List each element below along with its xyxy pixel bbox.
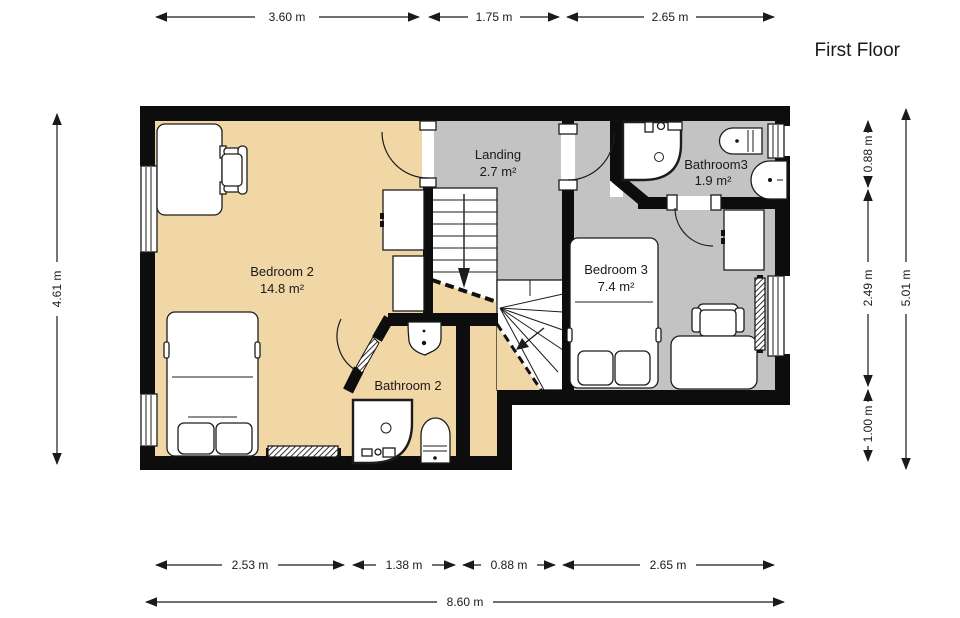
bedroom2-area: 14.8 m² <box>260 281 305 296</box>
dim-right-1: 0.88 m <box>861 136 875 173</box>
page-title: First Floor <box>815 40 901 61</box>
radiator-icon <box>755 275 765 353</box>
window-right-bedroom3 <box>768 276 784 356</box>
window-right-bathroom3 <box>768 124 784 158</box>
window-left-upper <box>141 166 157 252</box>
bathroom2-label: Bathroom 2 <box>374 378 441 393</box>
dim-right-total: 5.01 m <box>899 270 913 307</box>
desk-icon <box>157 124 226 215</box>
dim-top-1: 3.60 m <box>269 10 306 24</box>
double-bed-icon <box>164 312 260 456</box>
sink-icon <box>751 161 787 199</box>
dim-right-2: 2.49 m <box>861 270 875 307</box>
dim-top-3: 2.65 m <box>652 10 689 24</box>
double-bed-icon <box>567 238 661 388</box>
bedroom3-label: Bedroom 3 <box>584 262 648 277</box>
landing-label: Landing <box>475 147 521 162</box>
landing-area: 2.7 m² <box>480 164 518 179</box>
desk-chair-icon <box>692 304 744 336</box>
toilet-icon <box>421 418 450 463</box>
bathroom3-label: Bathroom3 <box>684 157 748 172</box>
desk-chair-icon <box>222 146 247 194</box>
floor-plan-page: Bedroom 2 14.8 m² Landing 2.7 m² Bathroo… <box>0 0 960 618</box>
dim-bottom-3: 0.88 m <box>491 558 528 572</box>
dim-bottom-1: 2.53 m <box>232 558 269 572</box>
window-left-lower <box>141 394 157 446</box>
dim-top-2: 1.75 m <box>476 10 513 24</box>
bedroom2-label: Bedroom 2 <box>250 264 314 279</box>
dim-bottom-4: 2.65 m <box>650 558 687 572</box>
bedroom3-area: 7.4 m² <box>598 279 636 294</box>
wardrobe-icon <box>721 210 764 270</box>
dim-left: 4.61 m <box>50 271 64 308</box>
dim-bottom-2: 1.38 m <box>386 558 423 572</box>
dim-bottom-total: 8.60 m <box>447 595 484 609</box>
toilet-icon <box>720 128 763 154</box>
dim-right-3: 1.00 m <box>861 406 875 443</box>
radiator-icon <box>266 446 341 457</box>
desk-icon <box>671 336 757 389</box>
floor-plan-canvas: Bedroom 2 14.8 m² Landing 2.7 m² Bathroo… <box>0 0 960 618</box>
bathroom3-area: 1.9 m² <box>695 173 733 188</box>
